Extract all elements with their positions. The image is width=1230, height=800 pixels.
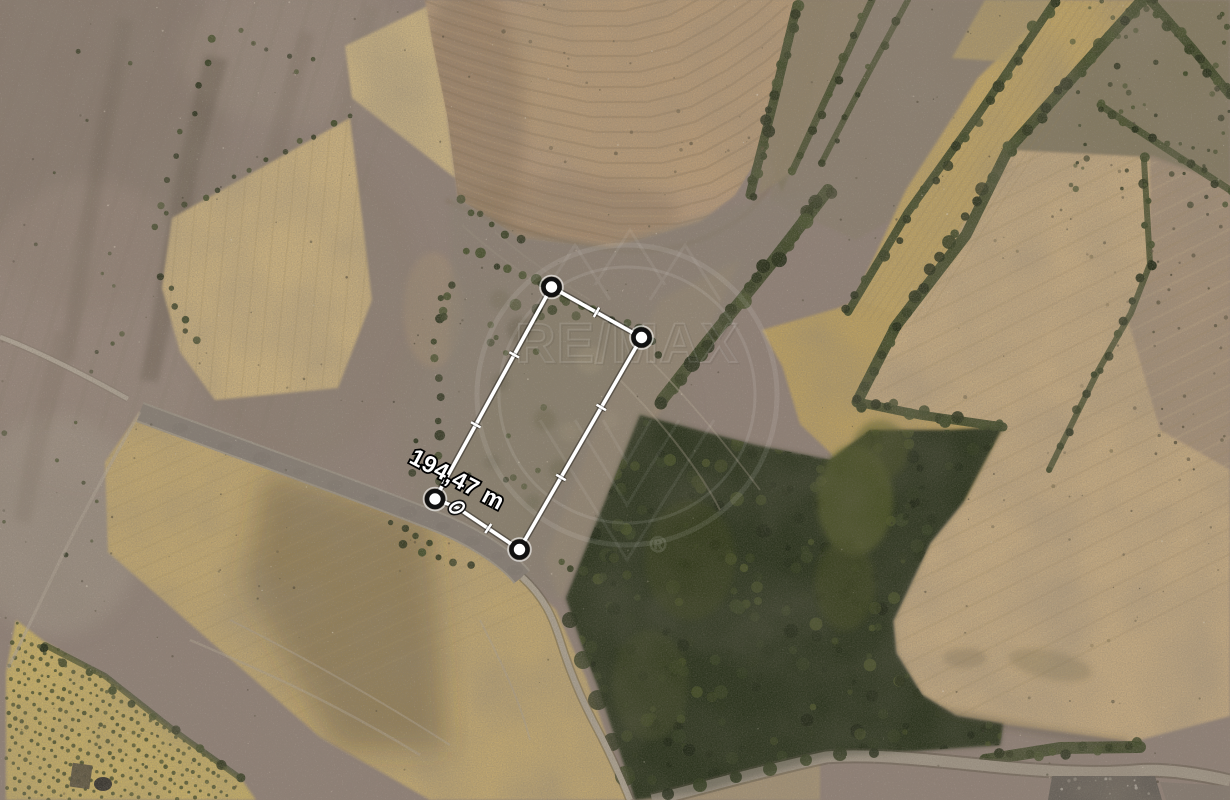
svg-text:®: ® <box>650 532 666 557</box>
